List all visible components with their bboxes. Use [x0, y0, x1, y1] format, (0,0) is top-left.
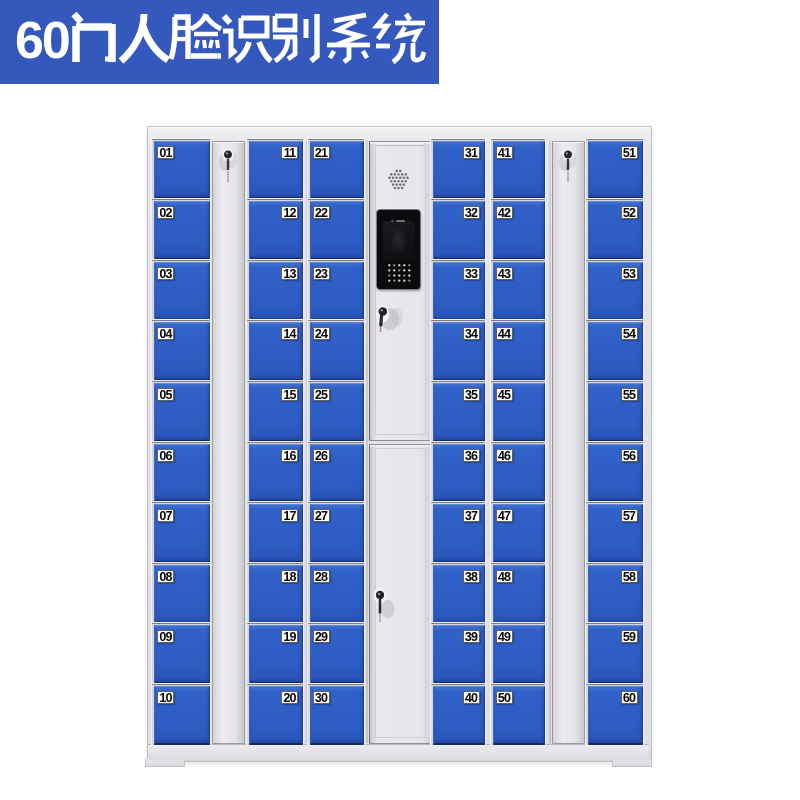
svg-text:60: 60	[15, 12, 69, 70]
